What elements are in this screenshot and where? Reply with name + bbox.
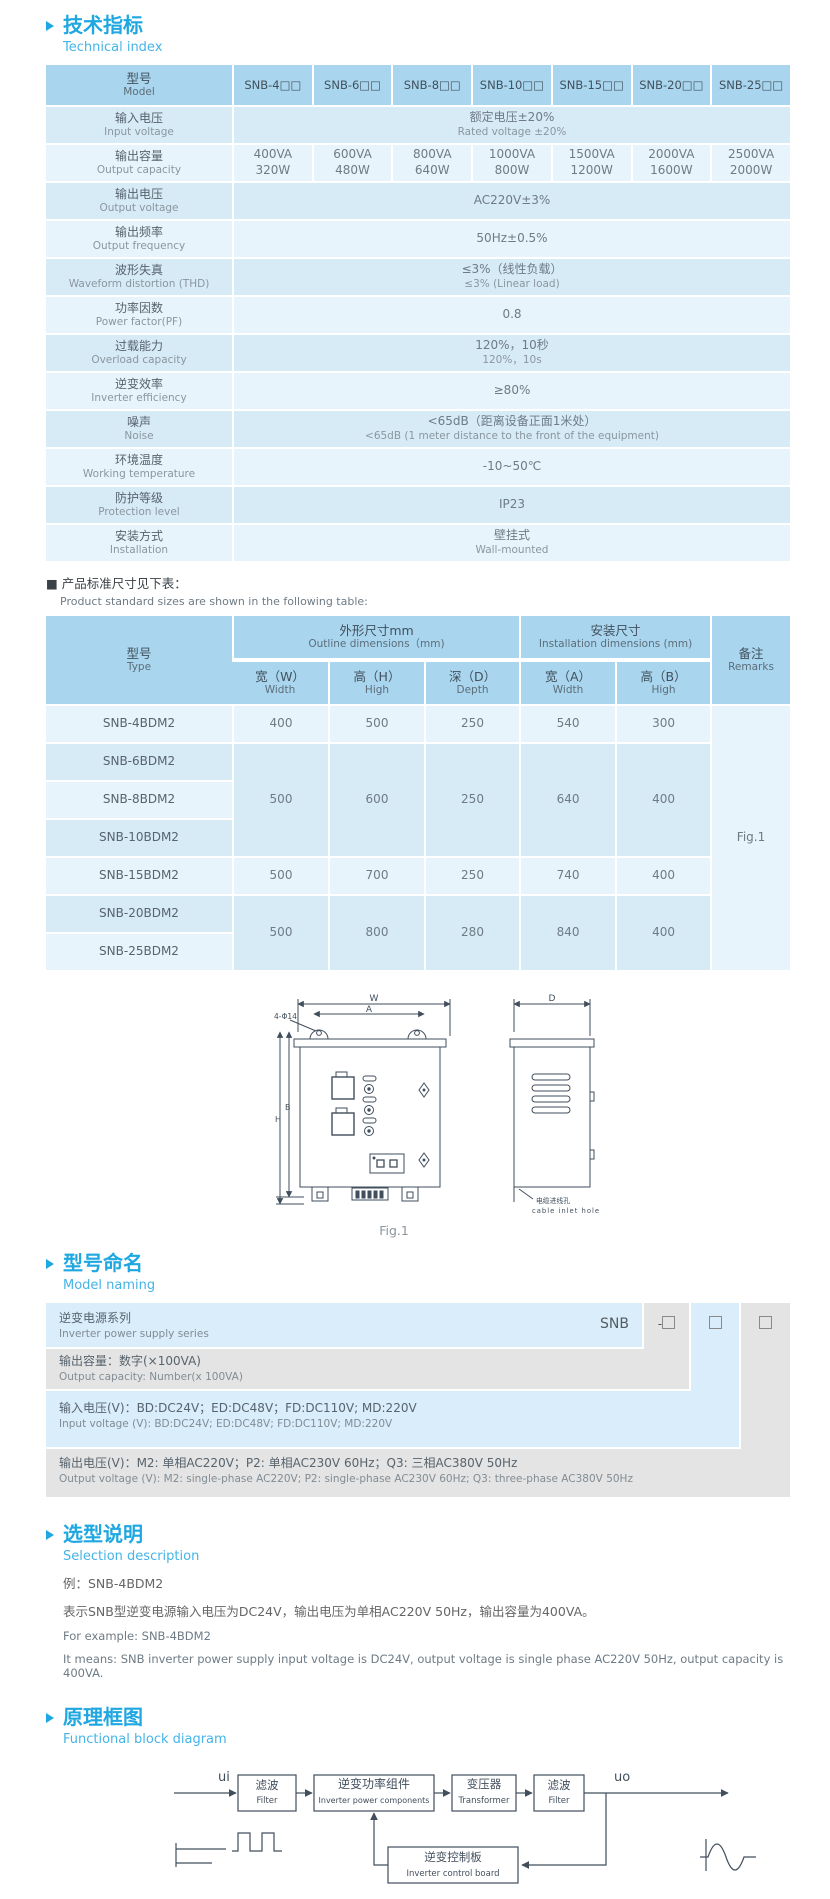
section-title-en: Model naming [63, 1278, 790, 1293]
spec-header-col: SNB-6□□ [312, 65, 392, 105]
dim-value-cell: 500 [232, 896, 328, 970]
dim-header-row-1: 型号Type 外形尺寸mmOutline dimensions（mm) 安装尺寸… [46, 616, 790, 658]
dim-table-row: SNB-6BDM2500600250640400 [46, 744, 790, 780]
series-label-en: Inverter power supply series [59, 1327, 642, 1342]
section-marker-icon [46, 1530, 54, 1540]
spec-header-row: 型号 Model SNB-4□□ SNB-6□□ SNB-8□□ SNB-10□… [46, 65, 790, 105]
dim-label-a: A [366, 1005, 373, 1015]
spec-table-row: 逆变效率Inverter efficiency≥80% [46, 373, 790, 409]
naming-band-capacity: - [644, 1303, 689, 1389]
dim-value-cell: 600 [328, 744, 424, 856]
code-box [662, 1316, 675, 1329]
code-box [759, 1316, 772, 1329]
spec-value-cell: 壁挂式Wall-mounted [232, 525, 790, 561]
block-diagram: ui uo 滤波 Filter 逆变功率组件 Inverter power co… [166, 1755, 790, 1899]
holes-label: 4-Φ14 [274, 1012, 297, 1021]
spec-table-row: 输出容量Output capacity400VA320W600VA480W800… [46, 145, 790, 181]
series-label-zh: 逆变电源系列 [59, 1310, 642, 1327]
spec-row-label: 功率因数Power factor(PF) [46, 297, 232, 333]
spec-row-label: 防护等级Protection level [46, 487, 232, 523]
selection-line: 例：SNB-4BDM2 [63, 1573, 790, 1592]
filter2-label-en: Filter [548, 1796, 570, 1806]
datasheet-page: 技术指标 Technical index 型号 Model SNB-4□□ SN… [0, 0, 830, 1899]
spec-value-cell: 0.8 [232, 297, 790, 333]
filter1-label-zh: 滤波 [256, 1778, 279, 1792]
selection-line: 表示SNB型逆变电源输入电压为DC24V，输出电压为单相AC220V 50Hz，… [63, 1601, 790, 1620]
transformer-label-en: Transformer [457, 1796, 510, 1806]
spec-header-col: SNB-4□□ [232, 65, 312, 105]
dim-row-type: SNB-4BDM2 [46, 706, 232, 742]
spec-value-cell: 1500VA1200W [551, 145, 631, 181]
section-technical-index-header: 技术指标 Technical index [46, 14, 790, 55]
spec-row-label: 输出电压Output voltage [46, 183, 232, 219]
spec-row-label: 噪声Noise [46, 411, 232, 447]
spec-value-cell: -10~50℃ [232, 449, 790, 485]
spec-header-col: SNB-15□□ [551, 65, 631, 105]
spec-header-col: SNB-25□□ [710, 65, 790, 105]
naming-row-capacity: 输出容量：数字(×100VA) Output capacity: Number(… [46, 1349, 644, 1389]
dim-value-cell: 740 [519, 858, 615, 894]
dim-value-cell: 400 [615, 744, 710, 856]
spec-row-label: 输出频率Output frequency [46, 221, 232, 257]
selection-line: For example: SNB-4BDM2 [63, 1629, 790, 1643]
code-slot-input [691, 1316, 739, 1331]
dim-table-row: SNB-4BDM2400500250540300Fig.1 [46, 706, 790, 742]
cable-inlet-label-en: cable inlet hole [532, 1207, 600, 1215]
dim-value-cell: 300 [615, 706, 710, 742]
spec-value-cell: 50Hz±0.5% [232, 221, 790, 257]
section-title-zh: 原理框图 [63, 1706, 790, 1729]
spec-value-cell: 2500VA2000W [710, 145, 790, 181]
spec-value-cell: ≥80% [232, 373, 790, 409]
dim-header-type: 型号Type [46, 616, 232, 704]
section-title-en: Selection description [63, 1549, 790, 1564]
dim-row-type: SNB-15BDM2 [46, 858, 232, 894]
control-label-en: Inverter control board [406, 1869, 499, 1879]
dim-value-cell: 500 [232, 858, 328, 894]
dim-label-h: H [275, 1115, 281, 1124]
spec-value-cell: 800VA640W [391, 145, 471, 181]
spec-row-label: 输出容量Output capacity [46, 145, 232, 181]
spec-table-row: 环境温度Working temperature-10~50℃ [46, 449, 790, 485]
spec-row-label: 安装方式Installation [46, 525, 232, 561]
transformer-label-zh: 变压器 [467, 1777, 502, 1791]
dim-subheader-d: 深（D）Depth [424, 660, 519, 704]
dim-value-cell: 250 [424, 706, 519, 742]
section-marker-icon [46, 1259, 54, 1269]
filter1-label-en: Filter [256, 1796, 278, 1806]
spec-value-cell: ≤3%（线性负载）≤3% (Linear load) [232, 259, 790, 295]
dim-value-cell: 540 [519, 706, 615, 742]
dim-value-cell: 400 [615, 896, 710, 970]
spec-row-label: 过载能力Overload capacity [46, 335, 232, 371]
spec-table-row: 防护等级Protection levelIP23 [46, 487, 790, 523]
spec-table-row: 安装方式Installation壁挂式Wall-mounted [46, 525, 790, 561]
spec-row-label: 环境温度Working temperature [46, 449, 232, 485]
diagram-output-label: uo [614, 1770, 630, 1785]
dim-value-cell: 840 [519, 896, 615, 970]
section-title-zh: 技术指标 [63, 14, 790, 37]
block-diagram-svg: ui uo 滤波 Filter 逆变功率组件 Inverter power co… [166, 1755, 766, 1895]
section-title-en: Functional block diagram [63, 1732, 790, 1747]
spec-table: 型号 Model SNB-4□□ SNB-6□□ SNB-8□□ SNB-10□… [46, 63, 790, 563]
dim-value-cell: 250 [424, 744, 519, 856]
spec-value-cell: 2000VA1600W [631, 145, 711, 181]
spec-value-cell: AC220V±3% [232, 183, 790, 219]
control-label-zh: 逆变控制板 [424, 1850, 482, 1864]
size-note-zh: ■ 产品标准尺寸见下表： [46, 573, 790, 592]
product-drawing: W A D 4-Φ14 H B 电缆进线孔 cable inlet hole F… [274, 992, 790, 1248]
dim-header-outline: 外形尺寸mmOutline dimensions（mm) [232, 616, 519, 658]
spec-row-label: 逆变效率Inverter efficiency [46, 373, 232, 409]
spec-value-cell: 额定电压±20%Rated voltage ±20% [232, 107, 790, 143]
dim-value-cell: 500 [232, 744, 328, 856]
fig1-caption: Fig.1 [379, 1223, 409, 1238]
dim-header-remarks: 备注Remarks [710, 616, 790, 704]
spec-value-cell: 120%，10秒120%，10s [232, 335, 790, 371]
dim-table-row: SNB-20BDM2500800280840400 [46, 896, 790, 932]
spec-value-cell: 400VA320W [232, 145, 312, 181]
spec-header-col: SNB-20□□ [631, 65, 711, 105]
spec-value-cell: IP23 [232, 487, 790, 523]
spec-header-model: 型号 Model [46, 65, 232, 105]
naming-band-input [691, 1303, 739, 1447]
series-code: SNB [600, 1316, 629, 1332]
dim-row-type: SNB-25BDM2 [46, 934, 232, 970]
power-label-en: Inverter power components [319, 1796, 430, 1805]
dim-value-cell: 250 [424, 858, 519, 894]
spec-header-col: SNB-10□□ [471, 65, 551, 105]
dim-subheader-h: 高（H）High [328, 660, 424, 704]
dim-remarks-cell: Fig.1 [710, 706, 790, 970]
dim-label-b: B [285, 1103, 291, 1112]
spec-table-row: 噪声Noise<65dB（距离设备正面1米处）<65dB (1 meter di… [46, 411, 790, 447]
fig1-drawing-svg: W A D 4-Φ14 H B 电缆进线孔 cable inlet hole F… [274, 992, 604, 1244]
spec-table-row: 过载能力Overload capacity120%，10秒120%，10s [46, 335, 790, 371]
dim-row-type: SNB-20BDM2 [46, 896, 232, 932]
dim-header-install: 安装尺寸Installation dimensions (mm) [519, 616, 710, 658]
power-label-zh: 逆变功率组件 [338, 1776, 410, 1791]
filter2-label-zh: 滤波 [548, 1778, 571, 1792]
spec-header-col: SNB-8□□ [391, 65, 471, 105]
dim-row-type: SNB-10BDM2 [46, 820, 232, 856]
dimensions-table: 型号Type 外形尺寸mmOutline dimensions（mm) 安装尺寸… [46, 614, 790, 972]
naming-band-output [741, 1303, 790, 1497]
spec-row-label: 输入电压Input voltage [46, 107, 232, 143]
section-selection-header: 选型说明 Selection description [46, 1523, 790, 1564]
code-box [709, 1316, 722, 1329]
code-slot-capacity: - [644, 1316, 689, 1331]
dim-row-type: SNB-6BDM2 [46, 744, 232, 780]
dim-value-cell: 280 [424, 896, 519, 970]
spec-value-cell: 600VA480W [312, 145, 392, 181]
code-slot-output [741, 1316, 790, 1331]
diagram-input-label: ui [218, 1770, 230, 1785]
section-block-diagram-header: 原理框图 Functional block diagram [46, 1706, 790, 1747]
dim-table-row: SNB-15BDM2500700250740400 [46, 858, 790, 894]
dim-row-type: SNB-8BDM2 [46, 782, 232, 818]
spec-value-cell: <65dB（距离设备正面1米处）<65dB (1 meter distance … [232, 411, 790, 447]
selection-text: 例：SNB-4BDM2 表示SNB型逆变电源输入电压为DC24V，输出电压为单相… [46, 1573, 790, 1680]
dim-value-cell: 700 [328, 858, 424, 894]
cable-inlet-label-zh: 电缆进线孔 [536, 1196, 570, 1205]
spec-table-row: 输出电压Output voltageAC220V±3% [46, 183, 790, 219]
dim-value-cell: 640 [519, 744, 615, 856]
spec-table-row: 输入电压Input voltage额定电压±20%Rated voltage ±… [46, 107, 790, 143]
size-note: ■ 产品标准尺寸见下表： Product standard sizes are … [46, 573, 790, 608]
dim-subheader-a: 宽（A）Width [519, 660, 615, 704]
spec-value-cell: 1000VA800W [471, 145, 551, 181]
spec-table-row: 功率因数Power factor(PF)0.8 [46, 297, 790, 333]
section-model-naming-header: 型号命名 Model naming [46, 1252, 790, 1293]
section-title-en: Technical index [63, 40, 790, 55]
spec-table-row: 输出频率Output frequency50Hz±0.5% [46, 221, 790, 257]
section-marker-icon [46, 1713, 54, 1723]
naming-row-input: 输入电压(V)：BD:DC24V；ED:DC48V；FD:DC110V; MD:… [46, 1391, 691, 1447]
dim-subheader-b: 高（B）High [615, 660, 710, 704]
dim-subheader-w: 宽（W）Width [232, 660, 328, 704]
dim-value-cell: 400 [615, 858, 710, 894]
dim-value-cell: 800 [328, 896, 424, 970]
naming-row-series: 逆变电源系列 Inverter power supply series SNB [46, 1303, 642, 1347]
section-title-zh: 选型说明 [63, 1523, 790, 1546]
dim-value-cell: 400 [232, 706, 328, 742]
spec-table-row: 波形失真Waveform distortion (THD)≤3%（线性负载）≤3… [46, 259, 790, 295]
dim-value-cell: 500 [328, 706, 424, 742]
model-naming-diagram: 逆变电源系列 Inverter power supply series SNB … [46, 1303, 790, 1497]
section-marker-icon [46, 21, 54, 31]
dim-label-d: D [549, 994, 556, 1004]
section-title-zh: 型号命名 [63, 1252, 790, 1275]
size-note-en: Product standard sizes are shown in the … [60, 595, 790, 608]
selection-line: It means: SNB inverter power supply inpu… [63, 1652, 790, 1680]
spec-row-label: 波形失真Waveform distortion (THD) [46, 259, 232, 295]
dim-label-w: W [370, 994, 379, 1004]
naming-row-output: 输出电压(V)：M2: 单相AC220V；P2: 单相AC230V 60Hz；Q… [46, 1449, 741, 1497]
